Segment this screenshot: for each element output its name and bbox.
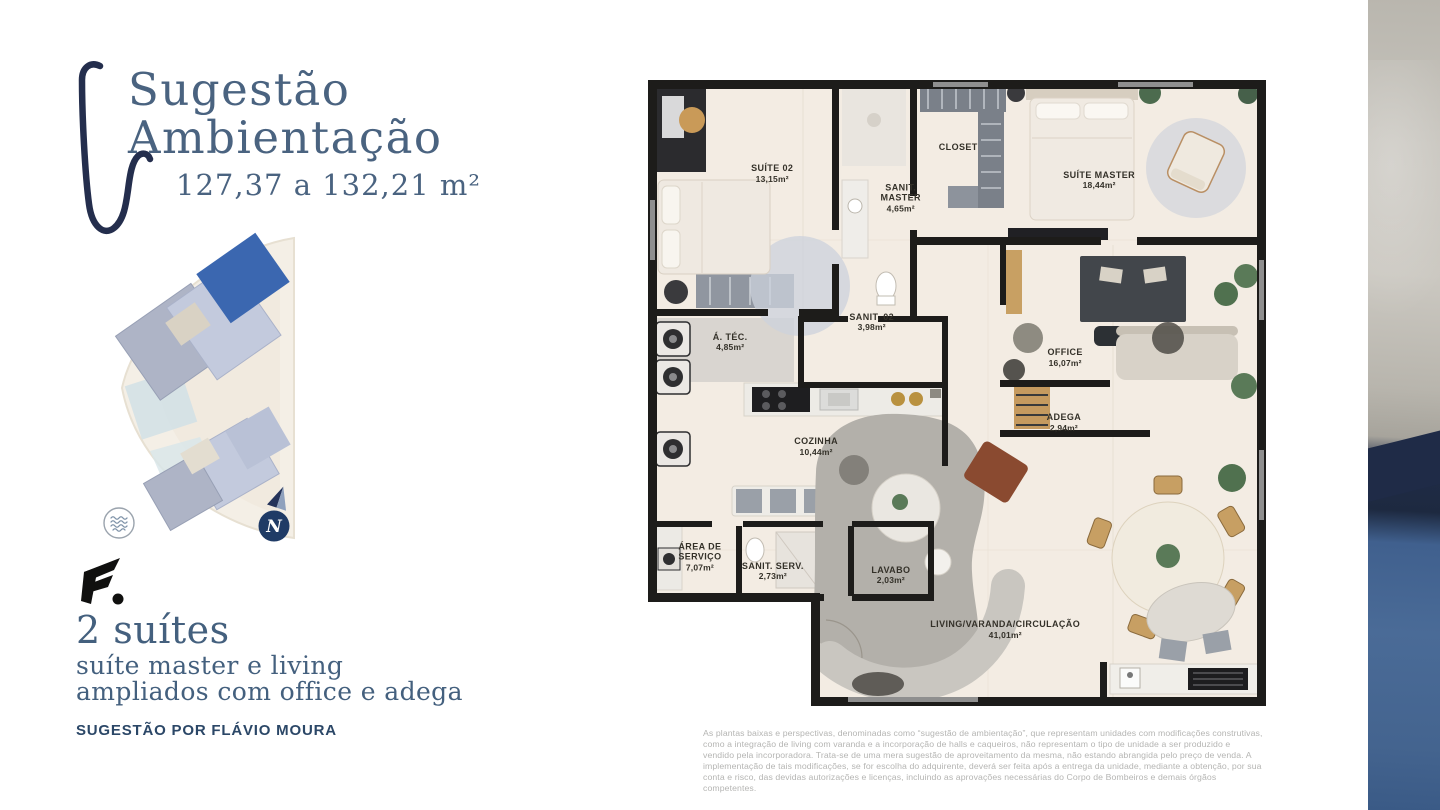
- page-title-line2: Ambientação: [128, 114, 443, 162]
- designer-credit: SUGESTÃO POR FLÁVIO MOURA: [76, 722, 337, 739]
- page-title-line1: Sugestão: [128, 66, 443, 114]
- art-strip-navy-band: [1368, 423, 1440, 505]
- art-strip-highlight: [1368, 60, 1440, 320]
- features-subline-2: ampliados com office e adega: [76, 678, 463, 705]
- compass-letter: N: [265, 517, 283, 537]
- developer-logo: [76, 556, 132, 608]
- adega-wine-rack: [1014, 387, 1050, 429]
- page-title: Sugestão Ambientação: [128, 66, 443, 162]
- legal-disclaimer: As plantas baixas e perspectivas, denomi…: [703, 728, 1263, 793]
- floor-plan: SUÍTE 0213,15m²SANIT. MASTER4,65m²CLOSET…: [648, 80, 1266, 714]
- features-headline: 2 suítes: [76, 608, 230, 652]
- compass-north-icon: N: [252, 484, 298, 544]
- brochure-page: { "header": { "title_line1": "Sugestão",…: [0, 0, 1440, 810]
- grill-counter: [1110, 664, 1260, 694]
- floor-plan-graphic: [648, 80, 1266, 714]
- area-range: 127,37 a 132,21 m²: [176, 168, 481, 202]
- waves-icon: [102, 506, 136, 540]
- features-subline-1: suíte master e living: [76, 652, 343, 679]
- art-strip-image: [1368, 0, 1440, 810]
- service-area-fixtures: [656, 526, 682, 590]
